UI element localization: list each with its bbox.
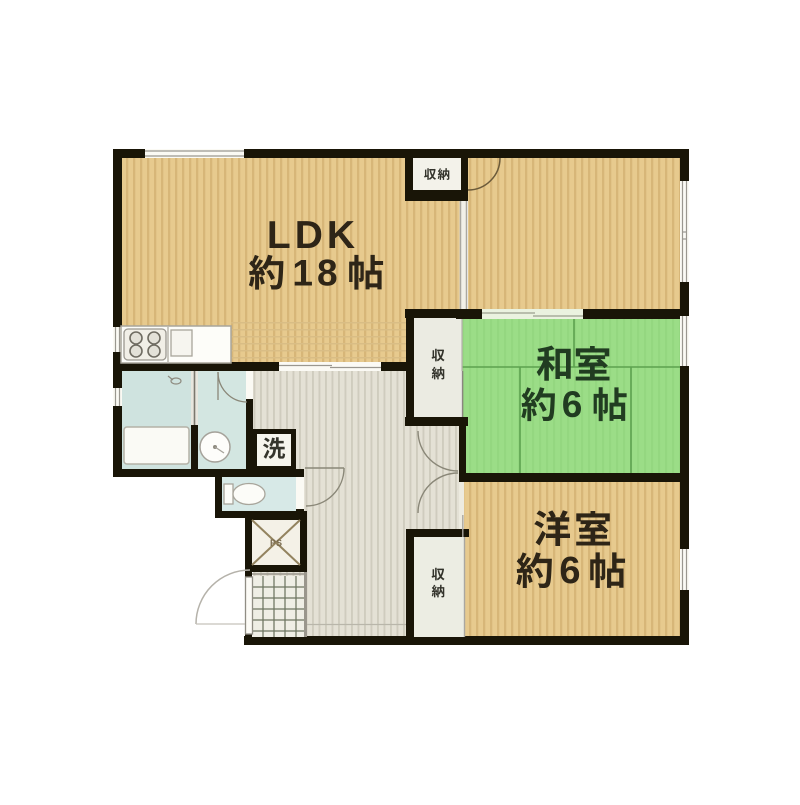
- svg-text:6: 6: [559, 550, 580, 592]
- svg-text:18: 18: [292, 253, 341, 294]
- svg-text:LDK: LDK: [267, 214, 359, 257]
- svg-text:PS: PS: [270, 538, 282, 548]
- svg-text:6: 6: [562, 384, 583, 425]
